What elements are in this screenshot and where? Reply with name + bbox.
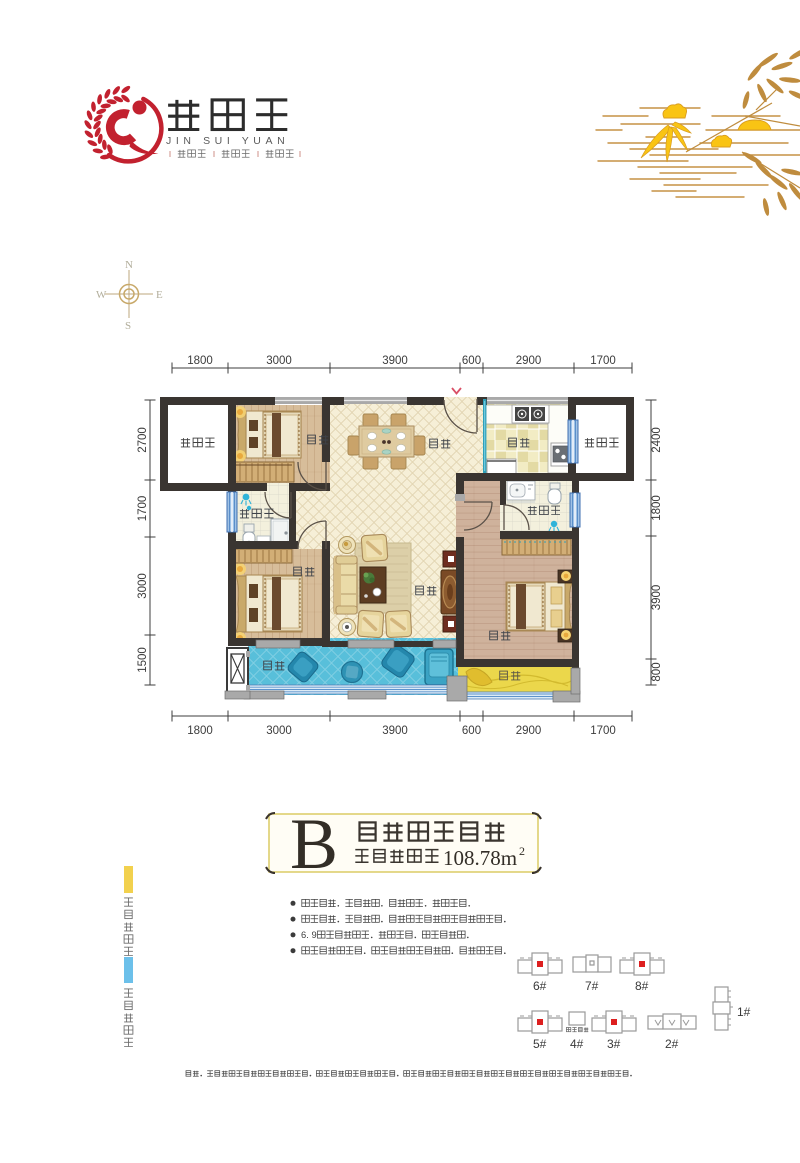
svg-text:2400: 2400 [651, 427, 663, 453]
svg-text:1700: 1700 [590, 725, 616, 737]
svg-text:N: N [125, 259, 133, 271]
svg-text:5#: 5# [533, 1037, 547, 1051]
svg-text:B: B [290, 804, 338, 884]
svg-text:6#: 6# [533, 979, 547, 993]
svg-text:1800: 1800 [187, 355, 213, 367]
svg-text:1700: 1700 [590, 355, 616, 367]
svg-text:2#: 2# [665, 1037, 679, 1051]
svg-text:2: 2 [519, 844, 525, 858]
svg-text:4#: 4# [570, 1037, 584, 1051]
svg-text:S: S [125, 320, 131, 332]
svg-text:600: 600 [462, 355, 481, 367]
svg-text:9: 9 [312, 929, 317, 940]
svg-text:E: E [156, 289, 163, 301]
svg-text:108.78m: 108.78m [443, 846, 517, 870]
svg-text:W: W [96, 289, 107, 301]
svg-text:800: 800 [651, 662, 663, 681]
svg-text:JIN SUI YUAN: JIN SUI YUAN [166, 135, 289, 147]
svg-text:3900: 3900 [382, 725, 408, 737]
svg-text:1700: 1700 [137, 496, 149, 522]
svg-text:600: 600 [462, 725, 481, 737]
svg-text:2900: 2900 [516, 355, 542, 367]
svg-text:3000: 3000 [266, 725, 292, 737]
svg-text:3000: 3000 [266, 355, 292, 367]
svg-text:1800: 1800 [187, 725, 213, 737]
svg-text:8#: 8# [635, 979, 649, 993]
svg-text:1500: 1500 [137, 647, 149, 673]
svg-text:7#: 7# [585, 979, 599, 993]
svg-text:3900: 3900 [651, 585, 663, 611]
svg-text:.: . [306, 929, 309, 940]
svg-text:1#: 1# [737, 1005, 751, 1019]
svg-text:2700: 2700 [137, 427, 149, 453]
svg-text:1800: 1800 [651, 495, 663, 521]
svg-text:2900: 2900 [516, 725, 542, 737]
svg-text:3000: 3000 [137, 573, 149, 599]
svg-text:3#: 3# [607, 1037, 621, 1051]
svg-text:3900: 3900 [382, 355, 408, 367]
